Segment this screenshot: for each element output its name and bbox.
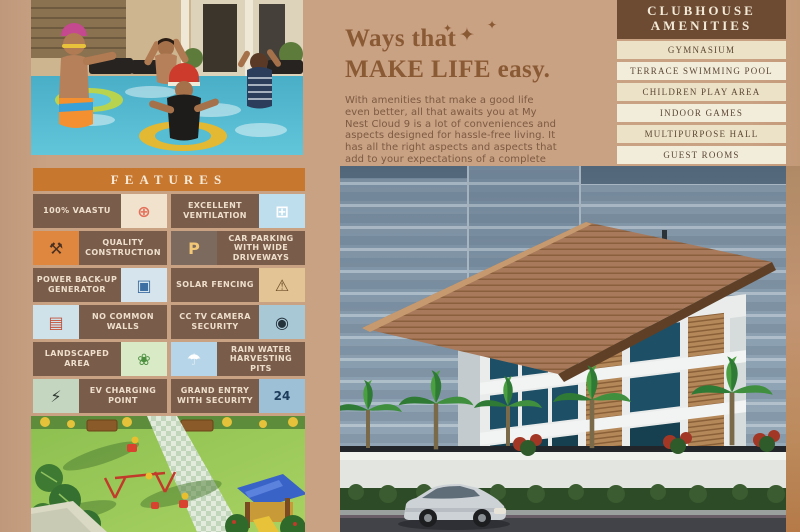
feature-cctv-security: CC TV CAMERA SECURITY ◉ [171,305,305,339]
feature-car-parking: CAR PARKING WITH WIDE DRIVEWAYS P [171,231,305,265]
cctv-camera-icon: ◉ [259,305,305,339]
amenity-item-guest-rooms: GUEST ROOMS [617,146,786,164]
brochure-page: ✦ ✦ ✦ Ways that MAKE LIFE easy. With ame… [0,0,800,532]
generator-icon: ▣ [121,268,167,302]
amenities-list: GYMNASIUM TERRACE SWIMMING POOL CHILDREN… [617,41,786,164]
rain-icon: ☂ [171,342,217,376]
features-title: FEATURES [33,168,305,191]
solar-fence-warning-icon: ⚠ [259,268,305,302]
clubhouse-amenities-title: CLUBHOUSE AMENITIES [617,0,786,39]
playground-art [31,416,305,532]
park-landscape-icon: ❀ [121,342,167,376]
features-section: FEATURES 100% VAASTU ⊕ EXCELLENT VENTILA… [33,168,305,413]
window-ventilation-icon: ⊞ [259,194,305,228]
amenity-item-children-play-area: CHILDREN PLAY AREA [617,83,786,101]
feature-grand-entry: GRAND ENTRY WITH SECURITY 24 [171,379,305,413]
building-art [340,166,786,532]
surveyor-icon: ⚒ [33,231,79,265]
feature-landscaped-area: LANDSCAPED AREA ❀ [33,342,167,376]
parking-garage-icon: P [171,231,217,265]
pool-photo [31,0,303,155]
feature-rain-water-harvesting: RAIN WATER HARVESTING PITS ☂ [171,342,305,376]
amenity-item-gymnasium: GYMNASIUM [617,41,786,59]
intro-block: ✦ ✦ ✦ Ways that MAKE LIFE easy. With ame… [345,24,560,178]
right-margin-strip [786,166,800,532]
feature-ventilation: EXCELLENT VENTILATION ⊞ [171,194,305,228]
amenity-item-indoor-games: INDOOR GAMES [617,104,786,122]
clubhouse-title-line2: AMENITIES [617,18,786,33]
playground-photo [31,416,305,532]
feature-no-common-walls: NO COMMON WALLS ▤ [33,305,167,339]
feature-solar-fencing: SOLAR FENCING ⚠ [171,268,305,302]
amenity-item-multipurpose-hall: MULTIPURPOSE HALL [617,125,786,143]
sparkle-icon: ✦ [459,24,475,46]
feature-ev-charging: EV CHARGING POINT ⚡ [33,379,167,413]
building-photo [340,166,786,532]
pool-photo-art [31,0,303,155]
feature-quality-construction: QUALITY CONSTRUCTION ⚒ [33,231,167,265]
sparkle-icon: ✦ [443,22,452,35]
sparkles-decoration: ✦ ✦ ✦ [443,12,513,52]
clubhouse-amenities-panel: CLUBHOUSE AMENITIES GYMNASIUM TERRACE SW… [617,0,786,167]
security-guard-24-icon: 24 [259,379,305,413]
feature-power-backup: POWER BACK-UP GENERATOR ▣ [33,268,167,302]
headline-line2: MAKE LIFE easy. [345,55,560,86]
brick-wall-icon: ▤ [33,305,79,339]
amenity-item-terrace-pool: TERRACE SWIMMING POOL [617,62,786,80]
sparkle-icon: ✦ [487,18,497,32]
clubhouse-title-line1: CLUBHOUSE [617,3,786,18]
ev-charging-icon: ⚡ [33,379,79,413]
feature-vaastu: 100% VAASTU ⊕ [33,194,167,228]
features-grid: 100% VAASTU ⊕ EXCELLENT VENTILATION ⊞ QU… [33,194,305,413]
vaastu-compass-icon: ⊕ [121,194,167,228]
